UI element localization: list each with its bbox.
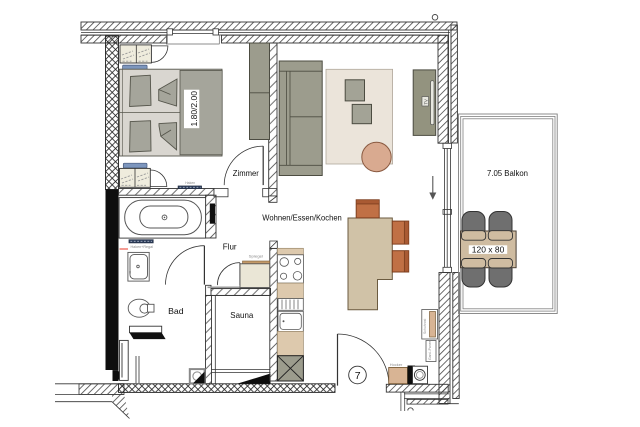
svg-text:Hocker: Hocker (390, 363, 403, 367)
svg-text:7.05 Balkon: 7.05 Balkon (487, 168, 528, 178)
svg-text:Haken: Haken (185, 181, 195, 185)
svg-text:1.80/2.00: 1.80/2.00 (189, 91, 199, 127)
svg-text:Flur: Flur (223, 242, 237, 252)
svg-text:Haken+Regal: Haken+Regal (131, 245, 154, 249)
svg-text:Bad: Bad (168, 306, 184, 316)
svg-text:Sauna: Sauna (230, 310, 253, 320)
svg-text:TV: TV (424, 99, 429, 105)
svg-text:Spiegel: Spiegel (249, 254, 264, 258)
svg-text:120 x 80: 120 x 80 (472, 245, 505, 254)
svg-text:Schuhrost: Schuhrost (423, 319, 427, 334)
svg-text:Wohnen/Essen/Kochen: Wohnen/Essen/Kochen (262, 212, 342, 222)
svg-text:7: 7 (355, 370, 361, 382)
svg-text:Zimmer: Zimmer (233, 168, 259, 178)
svg-text:Gard.-Paneel: Gard.-Paneel (428, 340, 432, 360)
